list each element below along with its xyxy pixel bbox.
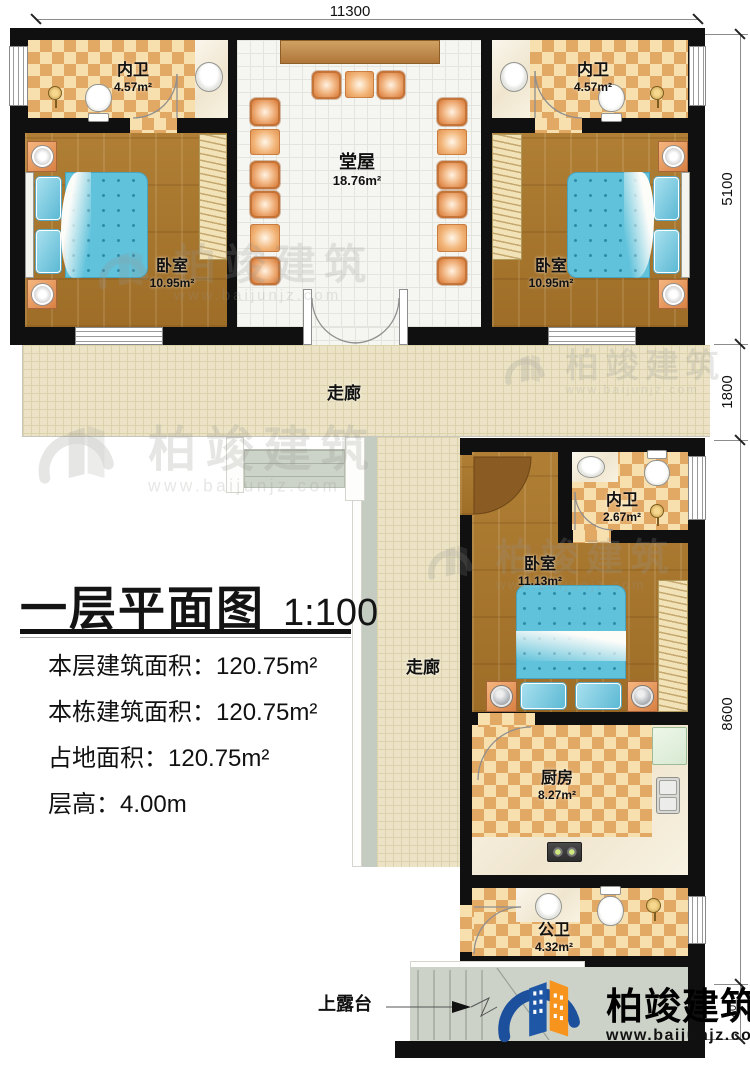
side-table xyxy=(250,224,280,252)
side-table xyxy=(437,129,467,155)
hall-door-gap xyxy=(303,327,408,345)
info-floor-height: 层高：4.00m xyxy=(48,784,317,819)
floor-plan-canvas: 11300 5100 1800 8600 40 xyxy=(0,0,750,1066)
dimension-line-top xyxy=(36,19,698,20)
room-label-hall: 堂屋 18.76m² xyxy=(317,153,397,188)
title-underline xyxy=(20,629,351,634)
dimension-line-right xyxy=(740,34,741,1040)
hall-door-leaf-left xyxy=(303,289,312,345)
hall-door-leaf-right xyxy=(399,289,408,345)
terrace-edge xyxy=(352,437,362,867)
toilet-icon xyxy=(644,450,670,486)
room-label-bath-top-left: 内卫 4.57m² xyxy=(93,62,173,94)
terrace-annotation: 上露台 xyxy=(305,995,385,1015)
corridor-vertical-floor xyxy=(377,437,460,867)
shower-icon xyxy=(48,86,62,100)
room-label-kitchen: 厨房 8.27m² xyxy=(517,770,597,802)
sink-icon xyxy=(500,62,528,92)
bath-middle-wall xyxy=(558,452,572,530)
sink-icon xyxy=(195,62,223,92)
info-building-area: 本栋建筑面积：120.75m² xyxy=(48,692,317,727)
room-label-bedroom-middle: 卧室 11.13m² xyxy=(500,556,580,588)
wardrobe xyxy=(199,134,227,260)
step-jamb xyxy=(345,437,365,501)
room-label-bath-top-right: 内卫 4.57m² xyxy=(553,62,633,94)
window xyxy=(688,896,706,944)
kitchen-sink-icon xyxy=(656,777,680,814)
dimension-right-1800: 1800 xyxy=(717,362,737,422)
brand-logo-icon xyxy=(485,975,600,1057)
chair xyxy=(250,191,280,218)
bath-top-left-door-gap xyxy=(130,118,177,133)
nightstand xyxy=(486,681,517,712)
bedroom-middle-door-gap xyxy=(460,455,474,515)
plan-info: 本层建筑面积：120.75m² 本栋建筑面积：120.75m² 占地面积：120… xyxy=(48,646,317,830)
nightstand xyxy=(27,141,57,172)
window xyxy=(75,327,163,345)
room-label-corridor-vertical: 走廊 xyxy=(383,659,463,678)
brand-url: www.baijunjz.com xyxy=(606,1027,750,1045)
toilet-icon xyxy=(597,886,624,926)
bath-middle-door-gap xyxy=(573,530,611,543)
room-label-bedroom-top-left: 卧室 10.95m² xyxy=(132,258,212,290)
chair xyxy=(437,161,467,189)
room-label-corridor: 走廊 xyxy=(304,385,384,404)
chair xyxy=(437,191,467,218)
window xyxy=(688,456,706,520)
bed xyxy=(25,172,148,278)
entry-steps xyxy=(244,449,345,488)
chair xyxy=(437,98,467,126)
fridge-icon xyxy=(652,727,687,765)
dimension-right-8600: 8600 xyxy=(717,684,737,744)
chair xyxy=(377,71,405,99)
sink-icon xyxy=(535,893,562,920)
stove-icon xyxy=(547,842,582,862)
terrace-edge-band xyxy=(362,437,377,867)
brand-name: 柏竣建筑 xyxy=(606,988,750,1025)
kitchen-door-gap xyxy=(478,713,535,727)
window xyxy=(689,46,706,106)
chair xyxy=(250,257,280,285)
window xyxy=(548,327,636,345)
side-table xyxy=(437,224,467,252)
bed xyxy=(516,585,626,712)
altar-table xyxy=(280,40,440,64)
window xyxy=(9,46,28,106)
room-label-bath-public: 公卫 4.32m² xyxy=(514,922,594,954)
side-table xyxy=(345,71,374,98)
bath-top-right-door-gap xyxy=(535,118,582,133)
dimension-top: 11300 xyxy=(300,3,400,20)
nightstand xyxy=(27,279,57,309)
wardrobe xyxy=(658,580,688,712)
sink-icon xyxy=(577,456,605,478)
shower-icon xyxy=(650,86,664,100)
wardrobe xyxy=(492,134,522,260)
chair xyxy=(312,71,341,99)
step-jamb xyxy=(226,437,244,493)
nightstand xyxy=(658,141,688,172)
room-label-bedroom-top-right: 卧室 10.95m² xyxy=(511,258,591,290)
side-table xyxy=(250,129,280,155)
chair xyxy=(437,257,467,285)
nightstand xyxy=(658,279,688,309)
info-floor-area: 本层建筑面积：120.75m² xyxy=(48,646,317,681)
info-footprint-area: 占地面积：120.75m² xyxy=(48,738,317,773)
chair xyxy=(250,98,280,126)
brand-logo: 柏竣建筑 www.baijunjz.com xyxy=(485,975,750,1057)
bath-public-door-gap xyxy=(460,905,474,952)
chair xyxy=(250,161,280,189)
room-label-bath-middle: 内卫 2.67m² xyxy=(582,492,662,524)
shower-icon xyxy=(646,898,661,913)
nightstand xyxy=(627,681,658,712)
dimension-right-5100: 5100 xyxy=(717,159,737,219)
brand-logo-text: 柏竣建筑 www.baijunjz.com xyxy=(606,988,750,1045)
title-underline-thin xyxy=(20,637,351,638)
